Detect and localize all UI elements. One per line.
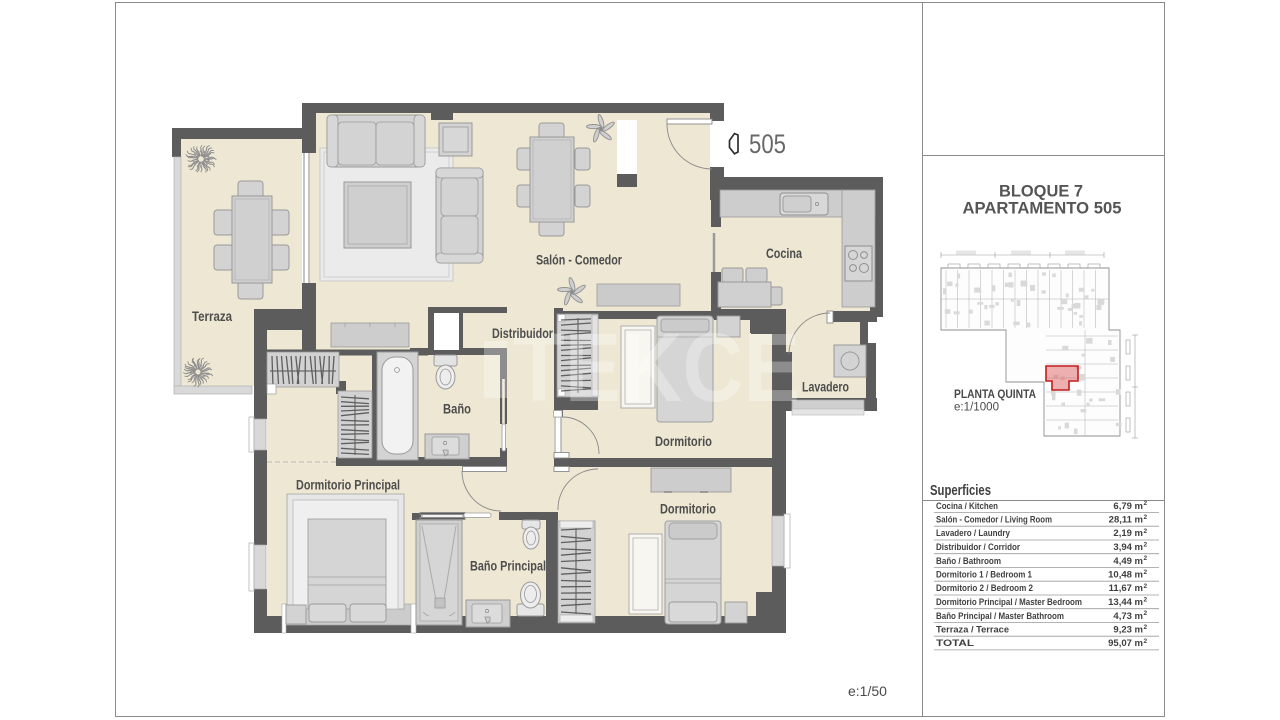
svg-text:6,79 m: 6,79 m xyxy=(1113,501,1143,512)
svg-text:2: 2 xyxy=(1144,542,1148,549)
svg-text:Terraza: Terraza xyxy=(192,309,232,324)
svg-text:Salón - Comedor: Salón - Comedor xyxy=(536,253,623,268)
svg-text:Terraza / Terrace: Terraza / Terrace xyxy=(936,625,1009,636)
svg-text:e:1/50: e:1/50 xyxy=(848,683,887,699)
svg-text:Dormitorio Principal: Dormitorio Principal xyxy=(296,478,400,493)
svg-text:2: 2 xyxy=(1144,597,1148,604)
svg-text:9,23 m: 9,23 m xyxy=(1113,625,1143,636)
svg-text:Lavadero / Laundry: Lavadero / Laundry xyxy=(936,528,1011,539)
svg-text:11,67 m: 11,67 m xyxy=(1109,583,1143,594)
svg-text:505: 505 xyxy=(749,129,786,159)
svg-text:Cocina: Cocina xyxy=(766,246,802,261)
svg-text:2: 2 xyxy=(1144,528,1148,535)
svg-text:Baño / Bathroom: Baño / Bathroom xyxy=(936,556,1001,567)
svg-text:2: 2 xyxy=(1144,569,1148,576)
svg-text:Baño Principal: Baño Principal xyxy=(470,559,546,574)
svg-text:2: 2 xyxy=(1144,624,1148,631)
svg-text:4,49 m: 4,49 m xyxy=(1113,556,1143,567)
svg-text:e:1/1000: e:1/1000 xyxy=(954,402,999,414)
svg-text:Dormitorio 2 / Bedroom 2: Dormitorio 2 / Bedroom 2 xyxy=(936,583,1033,594)
svg-text:Dormitorio 1 / Bedroom 1: Dormitorio 1 / Bedroom 1 xyxy=(936,570,1033,581)
svg-text:28,11 m: 28,11 m xyxy=(1109,515,1143,526)
svg-text:TEKCE: TEKCE xyxy=(513,313,800,422)
svg-text:Lavadero: Lavadero xyxy=(802,380,849,395)
svg-text:Dormitorio Principal / Master: Dormitorio Principal / Master Bedroom xyxy=(936,597,1082,608)
svg-text:Dormitorio: Dormitorio xyxy=(655,434,712,449)
svg-text:Distribuidor: Distribuidor xyxy=(492,326,554,341)
svg-text:95,07 m: 95,07 m xyxy=(1108,638,1143,649)
svg-text:2: 2 xyxy=(1144,555,1148,562)
svg-text:Dormitorio: Dormitorio xyxy=(660,502,716,517)
svg-text:3,94 m: 3,94 m xyxy=(1113,542,1143,553)
svg-text:2,19 m: 2,19 m xyxy=(1113,528,1143,539)
svg-text:APARTAMENTO 505: APARTAMENTO 505 xyxy=(963,199,1122,218)
svg-text:2: 2 xyxy=(1144,638,1148,645)
svg-text:2: 2 xyxy=(1144,610,1148,617)
svg-text:13,44 m: 13,44 m xyxy=(1108,597,1143,608)
svg-text:2: 2 xyxy=(1144,583,1148,590)
svg-text:Baño: Baño xyxy=(443,402,471,417)
svg-text:TOTAL: TOTAL xyxy=(936,638,974,649)
svg-text:2: 2 xyxy=(1144,514,1148,521)
svg-text:Distribuidor / Corridor: Distribuidor / Corridor xyxy=(936,542,1020,553)
svg-text:Baño Principal / Master Bathro: Baño Principal / Master Bathroom xyxy=(936,611,1064,622)
svg-text:Salón - Comedor / Living Room: Salón - Comedor / Living Room xyxy=(936,515,1052,526)
svg-text:4,73 m: 4,73 m xyxy=(1113,611,1143,622)
svg-text:Cocina / Kitchen: Cocina / Kitchen xyxy=(936,501,998,512)
svg-text:Superficies: Superficies xyxy=(930,483,991,499)
svg-text:PLANTA QUINTA: PLANTA QUINTA xyxy=(954,387,1036,401)
svg-text:2: 2 xyxy=(1144,500,1148,507)
svg-text:10,48 m: 10,48 m xyxy=(1108,570,1143,581)
